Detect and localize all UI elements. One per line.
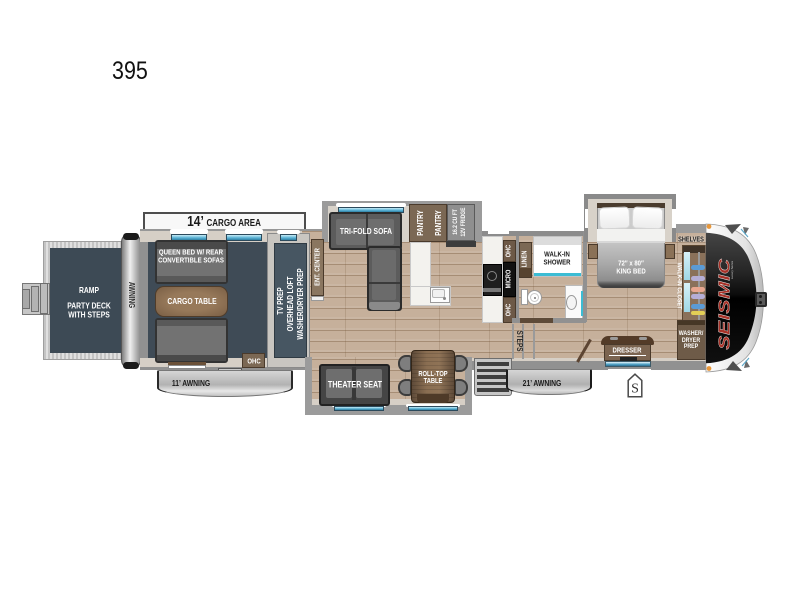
svg-text:S: S [631, 382, 639, 397]
svg-text:Luxury Series: Luxury Series [730, 260, 734, 279]
